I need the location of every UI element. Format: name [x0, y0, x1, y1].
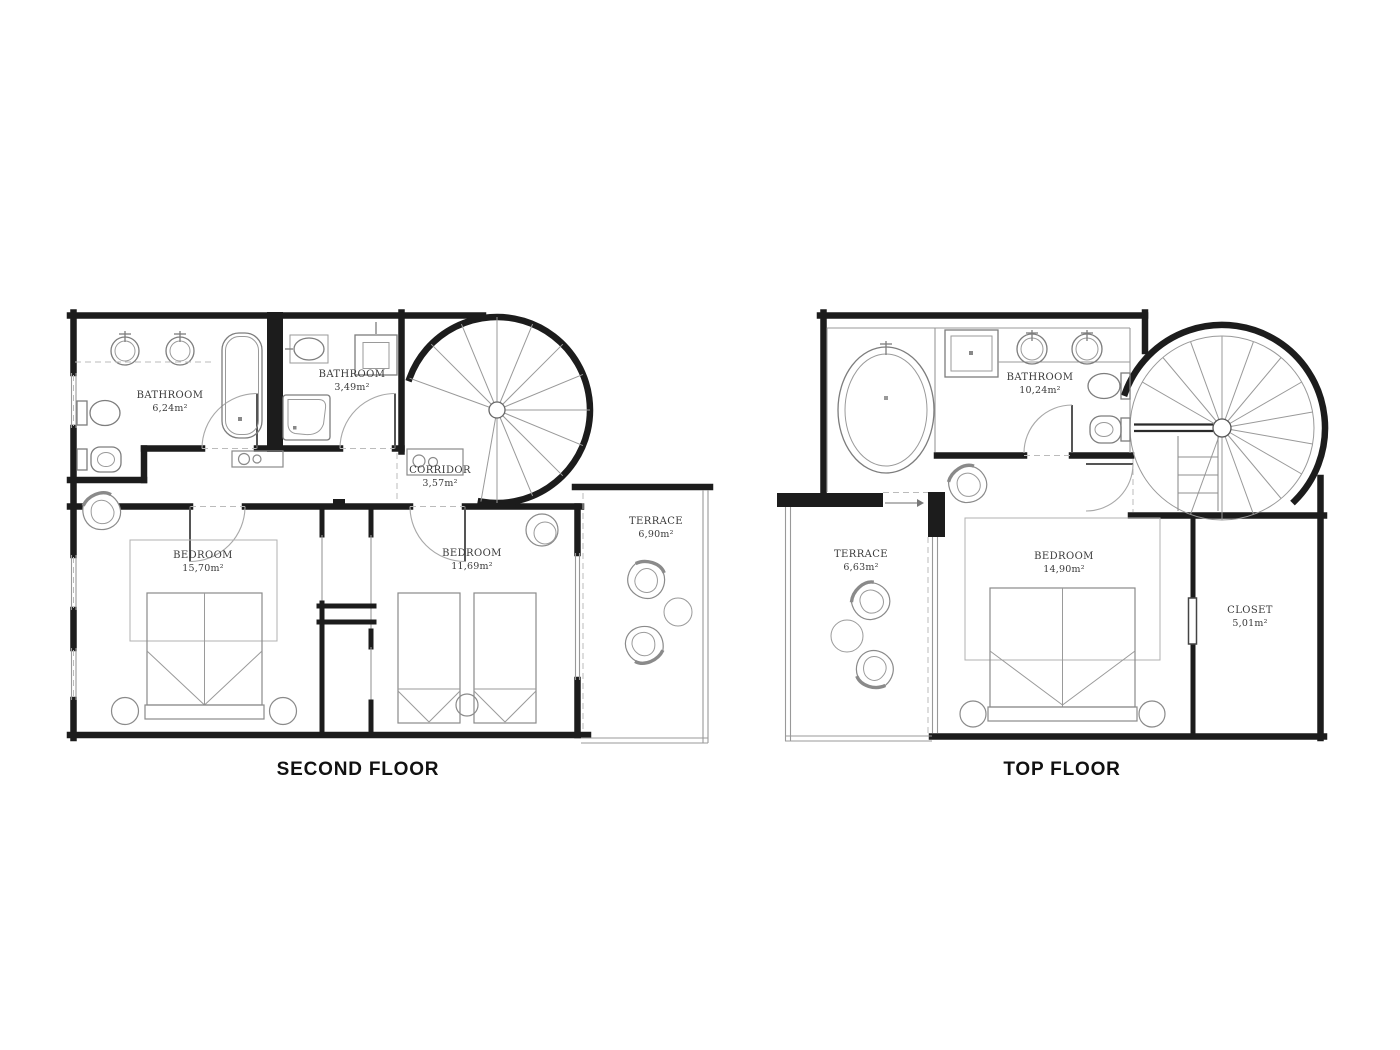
- sink-icon: [75, 331, 212, 365]
- room-label-bedroom-1: BEDROOM 15,70m²: [173, 550, 233, 574]
- room-name: TERRACE: [834, 549, 888, 562]
- room-name: BATHROOM: [319, 369, 386, 382]
- room-name: BEDROOM: [442, 548, 502, 561]
- room-name: CORRIDOR: [409, 465, 471, 478]
- room-label-closet: CLOSET 5,01m²: [1227, 605, 1273, 629]
- top-floor-plan-drawing: [760, 295, 1340, 755]
- room-name: TERRACE: [629, 516, 683, 529]
- armchair-icon: [78, 488, 125, 535]
- double-bed-icon: [988, 588, 1137, 721]
- toilet-icon: [77, 401, 120, 426]
- room-name: CLOSET: [1227, 605, 1273, 618]
- room-label-terrace-2: TERRACE 6,63m²: [834, 549, 888, 573]
- top-floor-title: TOP FLOOR: [1003, 759, 1120, 781]
- second-floor-walls: [70, 312, 710, 738]
- shower-icon: [283, 395, 330, 440]
- room-area: 14,90m²: [1034, 563, 1094, 575]
- room-area: 6,24m²: [137, 402, 204, 414]
- room-area: 15,70m²: [173, 562, 233, 574]
- room-label-bathroom-2: BATHROOM 3,49m²: [319, 369, 386, 393]
- double-bed-icon: [145, 593, 264, 719]
- spiral-staircase-icon: [1130, 336, 1314, 520]
- bidet-icon: [1090, 416, 1130, 443]
- floorplan-canvas: BATHROOM 6,24m² BATHROOM 3,49m² CORRIDOR…: [0, 0, 1400, 1050]
- room-area: 11,69m²: [442, 560, 502, 572]
- room-label-bedroom-2: BEDROOM 11,69m²: [442, 548, 502, 572]
- room-area: 6,63m²: [834, 561, 888, 573]
- oval-bathtub-icon: [838, 341, 934, 473]
- closet-door-leaf: [1189, 598, 1197, 644]
- second-floor-title: SECOND FLOOR: [277, 759, 440, 781]
- room-area: 6,90m²: [629, 528, 683, 540]
- room-label-bathroom-1: BATHROOM 6,24m²: [137, 390, 204, 414]
- terrace-table-icon: [664, 598, 692, 626]
- room-label-terrace-1: TERRACE 6,90m²: [629, 516, 683, 540]
- room-label-bedroom-3: BEDROOM 14,90m²: [1034, 551, 1094, 575]
- room-label-bathroom-3: BATHROOM 10,24m²: [1007, 372, 1074, 396]
- terrace-table-icon: [831, 620, 863, 652]
- room-name: BATHROOM: [137, 390, 204, 403]
- armchair-icon: [943, 459, 993, 509]
- room-area: 3,49m²: [319, 381, 386, 393]
- room-label-corridor: CORRIDOR 3,57m²: [409, 465, 471, 489]
- room-name: BEDROOM: [173, 550, 233, 563]
- room-area: 5,01m²: [1227, 617, 1273, 629]
- bidet-icon: [77, 447, 121, 472]
- sink-icon: [285, 335, 328, 363]
- terrace-chair-icon: [845, 575, 899, 692]
- washbasin-unit-icon: [355, 322, 397, 375]
- single-bed-icon: [398, 593, 460, 723]
- nightstand-icon: [456, 694, 478, 716]
- sink-icon: [998, 330, 1130, 364]
- room-name: BATHROOM: [1007, 372, 1074, 385]
- second-floor-windows: [72, 373, 584, 732]
- room-area: 3,57m²: [409, 477, 471, 489]
- room-name: BEDROOM: [1034, 551, 1094, 564]
- round-chair-icon: [526, 514, 558, 546]
- room-area: 10,24m²: [1007, 384, 1074, 396]
- single-bed-icon: [474, 593, 536, 723]
- terrace-chair-icon: [621, 556, 670, 668]
- shower-icon: [945, 330, 998, 377]
- entry-arrow-icon: [885, 499, 924, 507]
- top-floor-doors: [1024, 405, 1197, 644]
